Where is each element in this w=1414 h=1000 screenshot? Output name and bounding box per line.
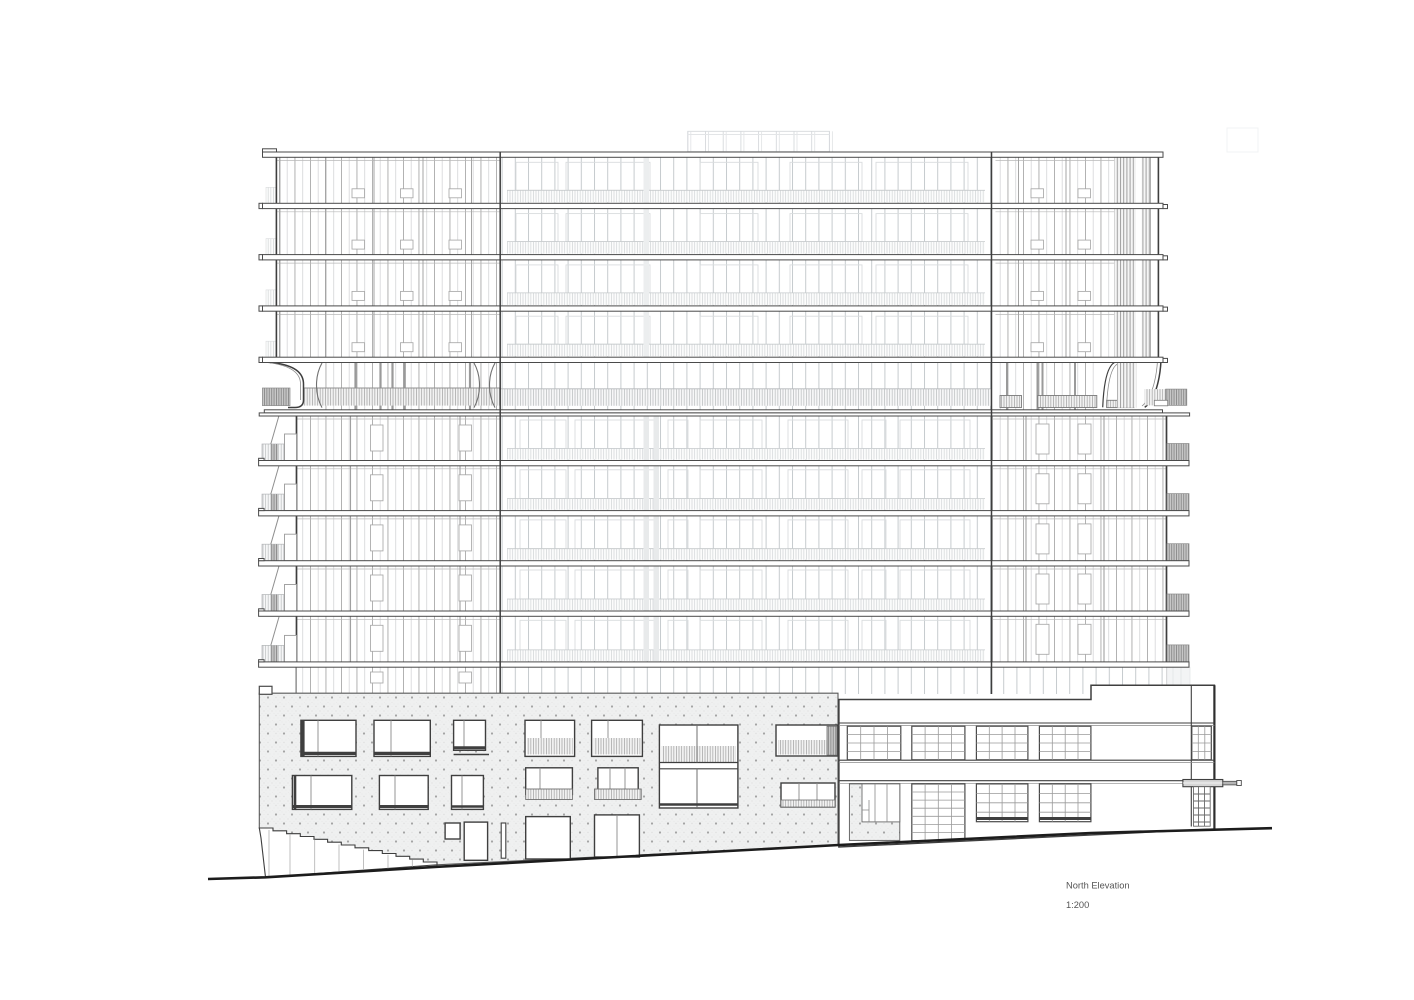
svg-text:North Elevation: North Elevation	[1066, 881, 1130, 891]
svg-text:1:200: 1:200	[1066, 900, 1089, 910]
